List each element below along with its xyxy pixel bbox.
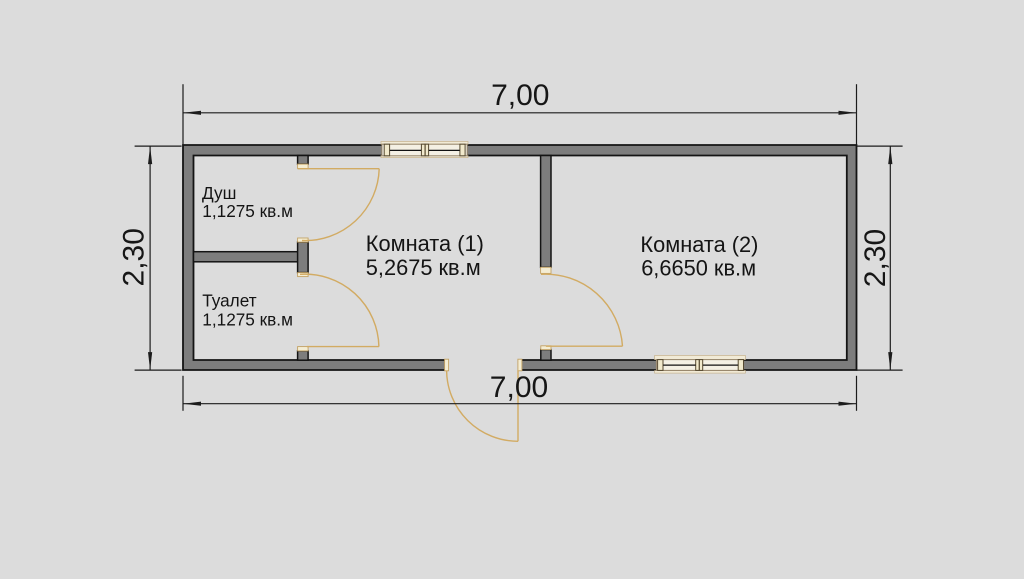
svg-text:7,00: 7,00 <box>491 79 549 112</box>
svg-text:Комната (2): Комната (2) <box>640 232 758 257</box>
svg-text:Туалет: Туалет <box>202 290 257 310</box>
svg-text:7,00: 7,00 <box>490 371 548 404</box>
svg-text:5,2675 кв.м: 5,2675 кв.м <box>366 255 481 280</box>
svg-text:Комната (1): Комната (1) <box>366 231 484 256</box>
svg-text:1,1275 кв.м: 1,1275 кв.м <box>202 201 293 221</box>
svg-text:Душ: Душ <box>202 183 236 203</box>
svg-text:2,30: 2,30 <box>118 228 151 286</box>
svg-text:6,6650 кв.м: 6,6650 кв.м <box>641 256 756 281</box>
svg-text:2,30: 2,30 <box>859 229 892 287</box>
svg-text:1,1275 кв.м: 1,1275 кв.м <box>202 309 293 329</box>
